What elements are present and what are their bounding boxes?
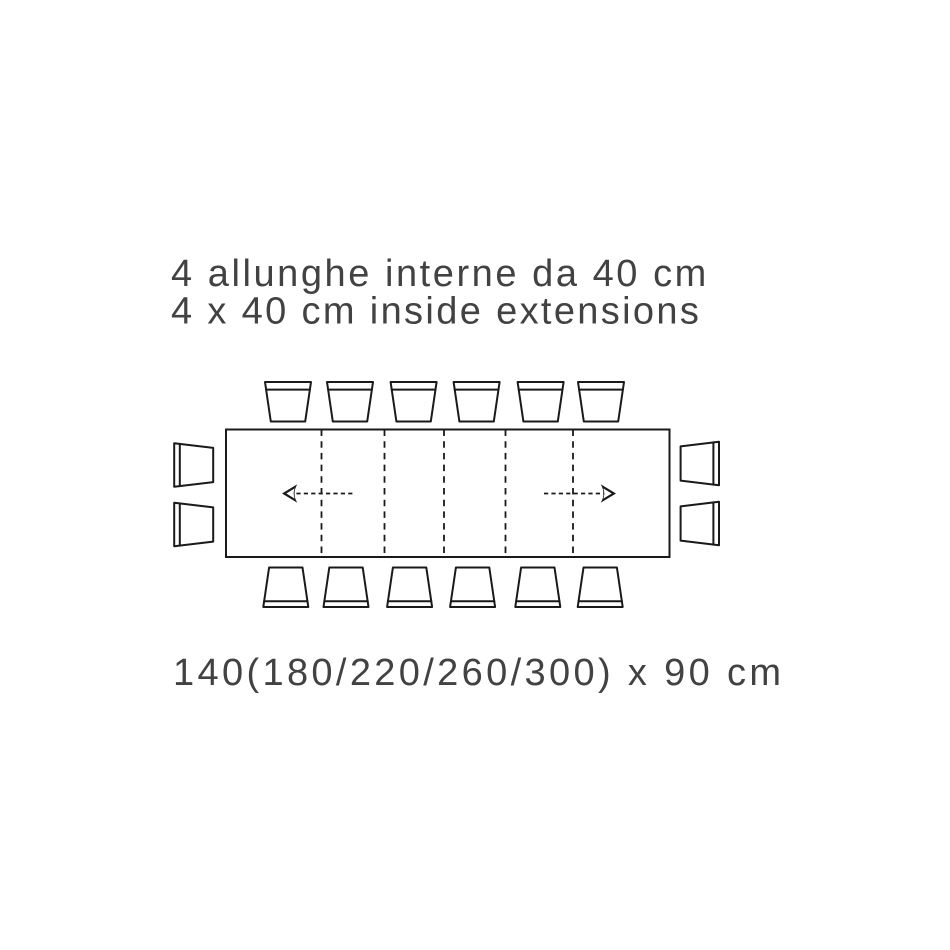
svg-text:4 allunghe interne da 40 cm: 4 allunghe interne da 40 cm: [171, 253, 709, 295]
svg-text:140(180/220/260/300) x 90 cm: 140(180/220/260/300) x 90 cm: [173, 652, 784, 694]
svg-text:4 x 40 cm inside extensions: 4 x 40 cm inside extensions: [171, 291, 701, 333]
